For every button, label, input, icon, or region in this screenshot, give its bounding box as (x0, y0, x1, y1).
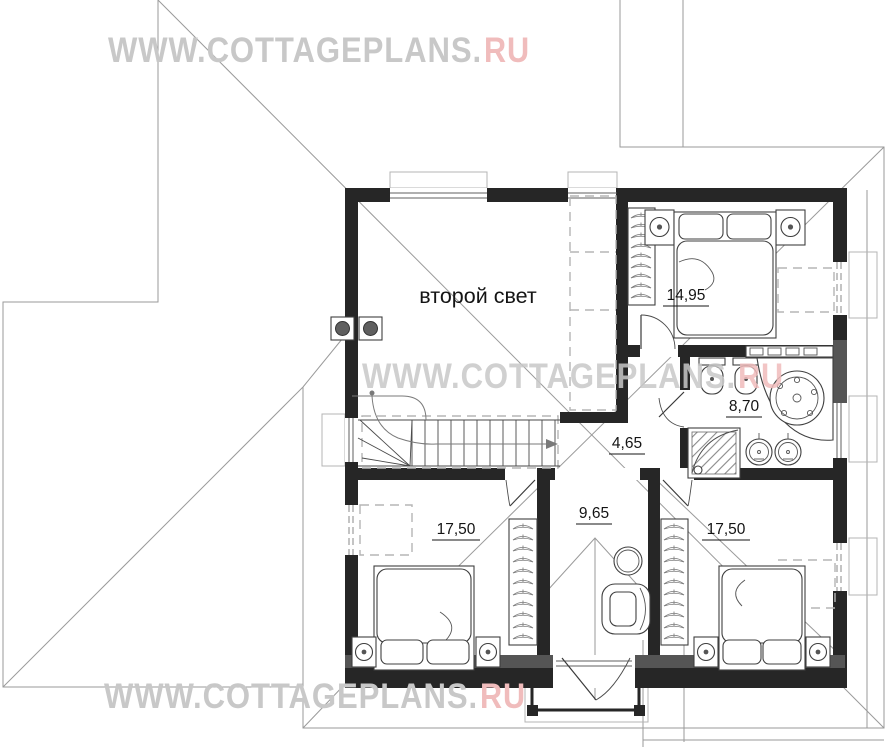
stair-winder (358, 420, 412, 466)
watermark-suffix: RU (480, 677, 526, 716)
armchair (602, 584, 650, 634)
shelf (746, 346, 833, 357)
watermark-text: WWW.COTTAGEPLANS. (104, 677, 478, 716)
wardrobe (509, 519, 537, 645)
watermark-bottom: WWW.COTTAGEPLANS. RU (104, 677, 526, 716)
staircase (352, 391, 560, 469)
sink (746, 433, 772, 465)
room-bedroom-top (628, 208, 805, 349)
room-area-bedroom-top: 14,95 (667, 287, 706, 304)
shower (688, 428, 740, 478)
watermark-top: WWW.COTTAGEPLANS. RU (108, 31, 530, 70)
floor-plan-page: второй свет 14,95 8,70 4,65 9,65 17,50 1… (0, 0, 886, 747)
double-bed (374, 566, 474, 670)
nightstand (352, 637, 376, 667)
round-table (614, 547, 642, 575)
double-bed (674, 212, 776, 338)
nightstand (476, 637, 500, 667)
wardrobe (661, 519, 688, 645)
watermark-suffix: RU (738, 357, 784, 396)
balcony (527, 688, 645, 716)
room-area-bedroom-left: 17,50 (437, 521, 476, 538)
nightstand (645, 210, 674, 245)
door-bedroom-top (641, 315, 675, 349)
room-area-bathroom: 8,70 (729, 398, 760, 415)
sink (775, 433, 801, 465)
door-bedroom-left (506, 480, 535, 506)
double-bed (719, 566, 805, 670)
floor-plan: второй свет 14,95 8,70 4,65 9,65 17,50 1… (0, 0, 886, 747)
room-area-study: 9,65 (579, 505, 609, 522)
watermark-middle: WWW.COTTAGEPLANS. RU (362, 357, 784, 396)
nightstand (806, 637, 830, 667)
door-bedroom-right (663, 480, 692, 506)
nightstand (776, 210, 805, 245)
nightstand (694, 637, 718, 667)
room-area-hall: 4,65 (612, 435, 642, 452)
watermark-text: WWW.COTTAGEPLANS. (108, 31, 482, 70)
room-area-bedroom-right: 17,50 (707, 521, 746, 538)
stair-treads (412, 420, 555, 466)
watermark-text: WWW.COTTAGEPLANS. (362, 357, 736, 396)
room-bedroom-left (352, 480, 537, 670)
room-label-second-light: второй свет (419, 284, 537, 308)
watermark-suffix: RU (484, 31, 530, 70)
